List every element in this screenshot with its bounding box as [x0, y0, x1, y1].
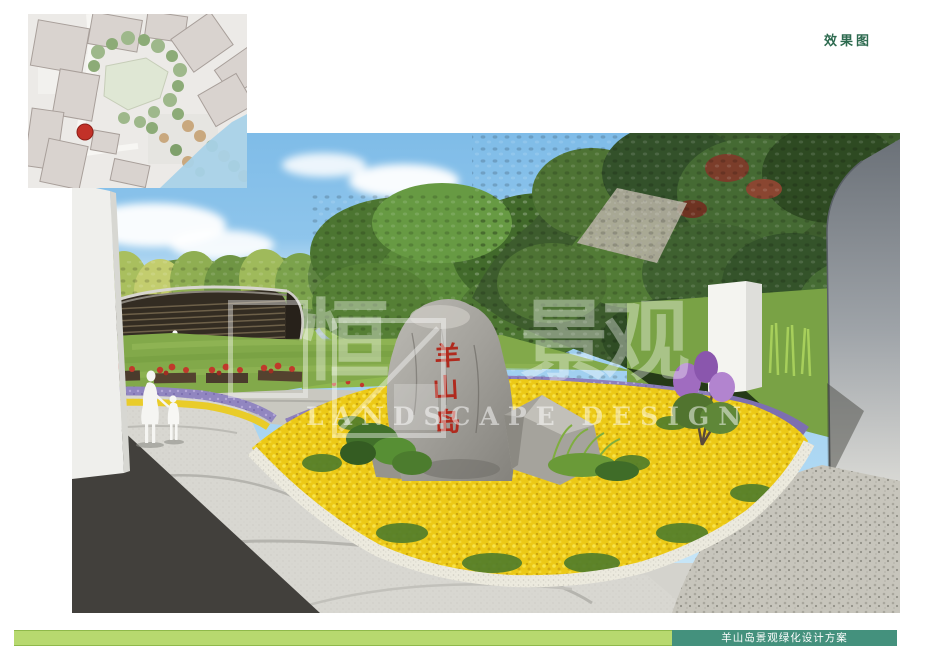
stone-char-1: 羊 [434, 340, 462, 372]
stone-char-2: 山 [432, 373, 460, 404]
footer-title-text: 羊山岛景观绿化设计方案 [721, 632, 848, 644]
page-title: 效果图 [824, 30, 872, 49]
stone-inscription: 羊 山 岛 [432, 340, 462, 438]
rendering-scene: 羊 山 岛 [72, 133, 900, 613]
design-sheet: 效果图 [0, 0, 926, 655]
location-marker [77, 124, 93, 140]
right-wall [827, 139, 900, 485]
stone-char-3: 岛 [434, 406, 462, 438]
site-plan-map [28, 14, 247, 188]
footer-bar-title: 羊山岛景观绿化设计方案 [672, 630, 897, 646]
site-plan-inset [28, 14, 247, 188]
footer-bar-light [14, 630, 672, 646]
main-rendering: 羊 山 岛 [72, 133, 900, 613]
